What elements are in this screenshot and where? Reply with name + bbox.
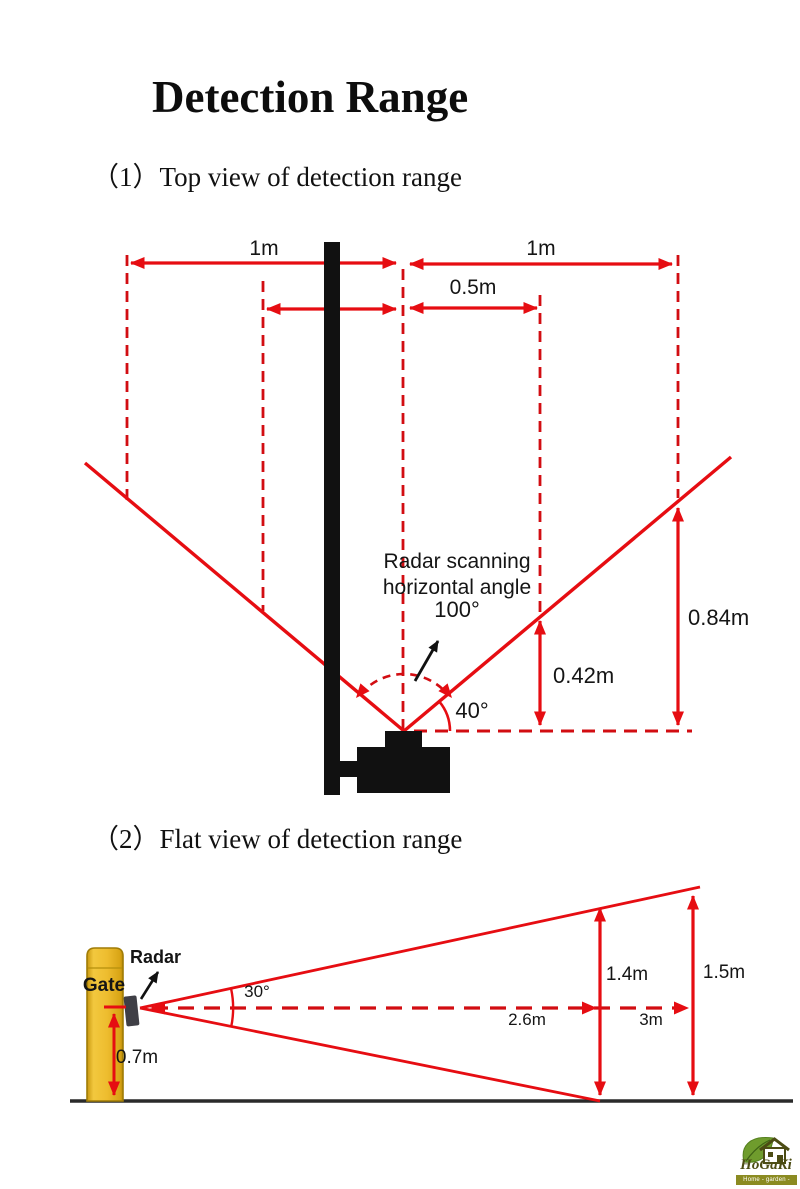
elevation-angle-label: 40°: [455, 699, 488, 722]
radar-unit-top-view: [337, 731, 450, 793]
dim-label-26m: 2.6m: [508, 1011, 546, 1029]
radar-body: [357, 747, 450, 793]
gate-label: Gate: [83, 976, 125, 996]
dim-label-084m: 0.84m: [688, 606, 749, 629]
logo-tagline-banner: Home - garden - kitchen: [736, 1175, 797, 1185]
gate-post: [87, 948, 123, 1101]
scan-angle-label: 100°: [434, 598, 480, 621]
radar-label: Radar: [130, 948, 181, 967]
pointer-arrow-100deg: [415, 641, 438, 681]
dim-label-1m-right: 1m: [526, 238, 555, 260]
beam-left: [85, 463, 404, 731]
flat-view-diagram: [70, 887, 793, 1101]
scan-angle-note-line1: Radar scanning: [383, 549, 531, 575]
axis-arrowhead-26m: [582, 1002, 597, 1015]
dim-label-1m-left: 1m: [249, 238, 278, 260]
scan-angle-note: Radar scanning horizontal angle: [383, 549, 531, 600]
manual-page: Detection Range （1）Top view of detection…: [0, 0, 800, 1189]
beam-upper: [140, 887, 700, 1008]
dim-label-3m: 3m: [639, 1011, 663, 1029]
beam-angle-label: 30°: [244, 983, 270, 1001]
flat-view-heading: （2）Flat view of detection range: [92, 825, 462, 855]
dim-label-14m: 1.4m: [606, 965, 648, 985]
top-view-diagram: [85, 242, 731, 795]
dim-label-05m: 0.5m: [450, 277, 497, 299]
axis-arrowhead-3m: [674, 1002, 689, 1015]
mounting-pole: [324, 242, 340, 795]
page-title: Detection Range: [152, 74, 468, 121]
radar-unit-flat-view: [123, 995, 139, 1026]
dim-label-15m: 1.5m: [703, 963, 745, 983]
dim-label-042m: 0.42m: [553, 664, 614, 687]
radar-sensor-head: [385, 731, 422, 747]
logo-brand-text: HoGaKi: [740, 1158, 792, 1174]
top-view-heading: （1）Top view of detection range: [92, 163, 462, 193]
pointer-arrow-radar: [141, 972, 158, 999]
dim-label-07m: 0.7m: [116, 1048, 158, 1068]
arc-40deg: [439, 701, 450, 731]
radar-bracket: [337, 761, 359, 777]
